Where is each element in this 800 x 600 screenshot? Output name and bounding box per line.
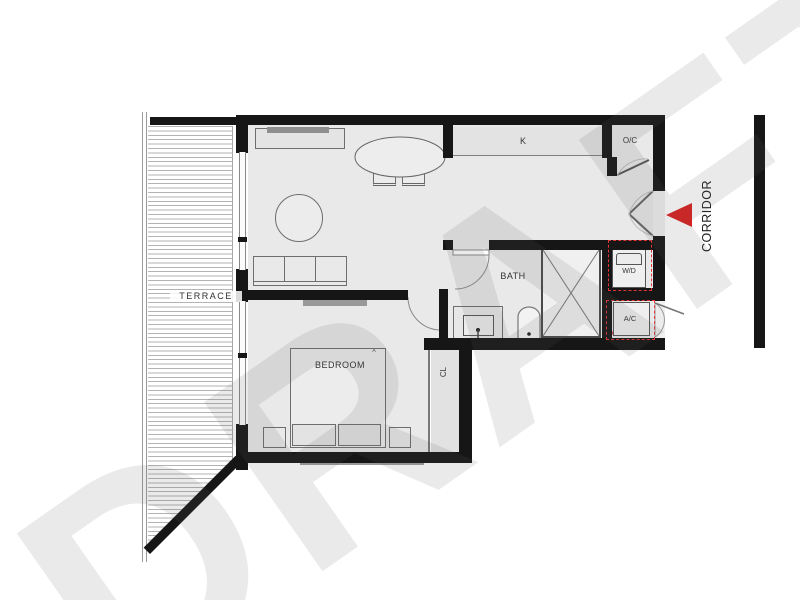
- cl-right-wall: [459, 350, 472, 462]
- bath-door-leaf: [453, 250, 489, 255]
- washer-dryer-label: W/D: [617, 268, 641, 275]
- bedroom-window-mullion: [238, 353, 247, 358]
- right-wall-upper: [653, 115, 665, 191]
- entry-door-leaf-upper: [629, 191, 653, 214]
- oval-dining-table: [355, 137, 445, 177]
- bath-door-arc: [455, 255, 489, 289]
- bed-corner-mark: ×: [369, 346, 379, 355]
- bath-label: BATH: [495, 272, 531, 281]
- floor-plan: TERRACE K O/C BATH BEDROOM CL W/D A/C CO…: [0, 0, 800, 600]
- oc-door-leaf: [617, 160, 649, 175]
- living-window: [239, 152, 246, 270]
- right-wall-mid: [653, 236, 665, 301]
- top-wall: [237, 115, 665, 125]
- kitchen-right-stub: [602, 125, 612, 158]
- entry-door-leaf-lower: [629, 214, 653, 236]
- living-window-mullion: [238, 237, 247, 242]
- plan-linework: [0, 0, 800, 600]
- kitchen-label: K: [515, 137, 531, 146]
- bath-top-wall-left: [443, 240, 453, 250]
- terrace-label: TERRACE: [170, 291, 242, 302]
- ac-door-fan: [655, 303, 664, 337]
- cl-closet-label: CL: [440, 362, 448, 382]
- toilet-flush-dot: [527, 332, 531, 336]
- living-bedroom-divider-wall: [237, 290, 408, 300]
- kitchen-left-stub: [443, 125, 453, 158]
- corridor-label: CORRIDOR: [669, 178, 745, 254]
- terrace-top-wall: [150, 117, 238, 125]
- ac-label: A/C: [618, 315, 642, 323]
- bedroom-sill-line: [300, 463, 424, 465]
- corridor-far-wall: [754, 115, 765, 348]
- coat-closet-label: O/C: [618, 137, 642, 145]
- bedroom-window: [239, 301, 246, 425]
- bedroom-door-arc: [408, 297, 441, 330]
- oc-door-hinge-stub: [607, 157, 617, 176]
- bedroom-bottom-wall: [237, 452, 472, 463]
- left-wall-upper-block: [236, 115, 248, 153]
- wd-service-outline: [608, 240, 652, 291]
- hall-bath-stub-wall: [439, 289, 448, 345]
- bedroom-label: BEDROOM: [312, 361, 368, 370]
